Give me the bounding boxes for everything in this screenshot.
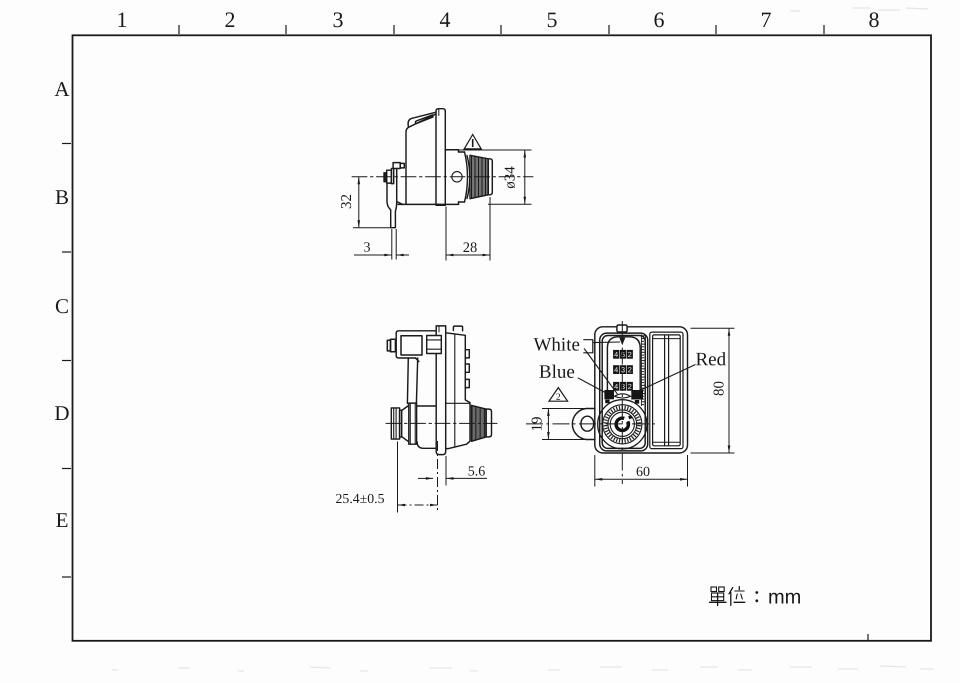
- svg-text:E: E: [56, 508, 69, 532]
- svg-text:3: 3: [363, 240, 370, 255]
- svg-text:1: 1: [116, 7, 127, 32]
- svg-text:B: B: [55, 185, 69, 209]
- svg-text:ø34: ø34: [503, 166, 519, 189]
- svg-text:C: C: [55, 294, 69, 318]
- svg-text:3: 3: [332, 7, 343, 32]
- svg-text:4: 4: [614, 365, 618, 374]
- svg-text:2: 2: [628, 365, 632, 374]
- svg-text:3: 3: [621, 382, 625, 391]
- svg-text:Red: Red: [695, 349, 726, 370]
- svg-text:4: 4: [614, 350, 618, 359]
- svg-text:8: 8: [868, 7, 879, 32]
- svg-text:2: 2: [556, 393, 561, 403]
- svg-text:Blue: Blue: [539, 362, 575, 383]
- svg-text:3: 3: [621, 365, 625, 374]
- svg-text:2: 2: [224, 7, 235, 32]
- svg-text:80: 80: [712, 381, 728, 396]
- svg-text:A: A: [54, 77, 70, 101]
- svg-text:2: 2: [628, 382, 632, 391]
- svg-text:32: 32: [339, 194, 355, 209]
- svg-text:19: 19: [530, 417, 546, 432]
- svg-text:mm: mm: [768, 587, 801, 609]
- svg-text:2: 2: [628, 350, 632, 359]
- svg-text:7: 7: [760, 7, 771, 32]
- svg-text:25.4±0.5: 25.4±0.5: [336, 491, 385, 506]
- svg-text:5: 5: [621, 350, 625, 359]
- svg-text:5: 5: [546, 7, 557, 32]
- svg-text:28: 28: [463, 240, 478, 256]
- svg-text:D: D: [54, 401, 69, 425]
- svg-text:4: 4: [439, 7, 450, 32]
- svg-text:60: 60: [636, 465, 650, 480]
- svg-text:6: 6: [653, 7, 664, 32]
- svg-text:White: White: [533, 335, 579, 356]
- svg-text:5.6: 5.6: [468, 464, 486, 479]
